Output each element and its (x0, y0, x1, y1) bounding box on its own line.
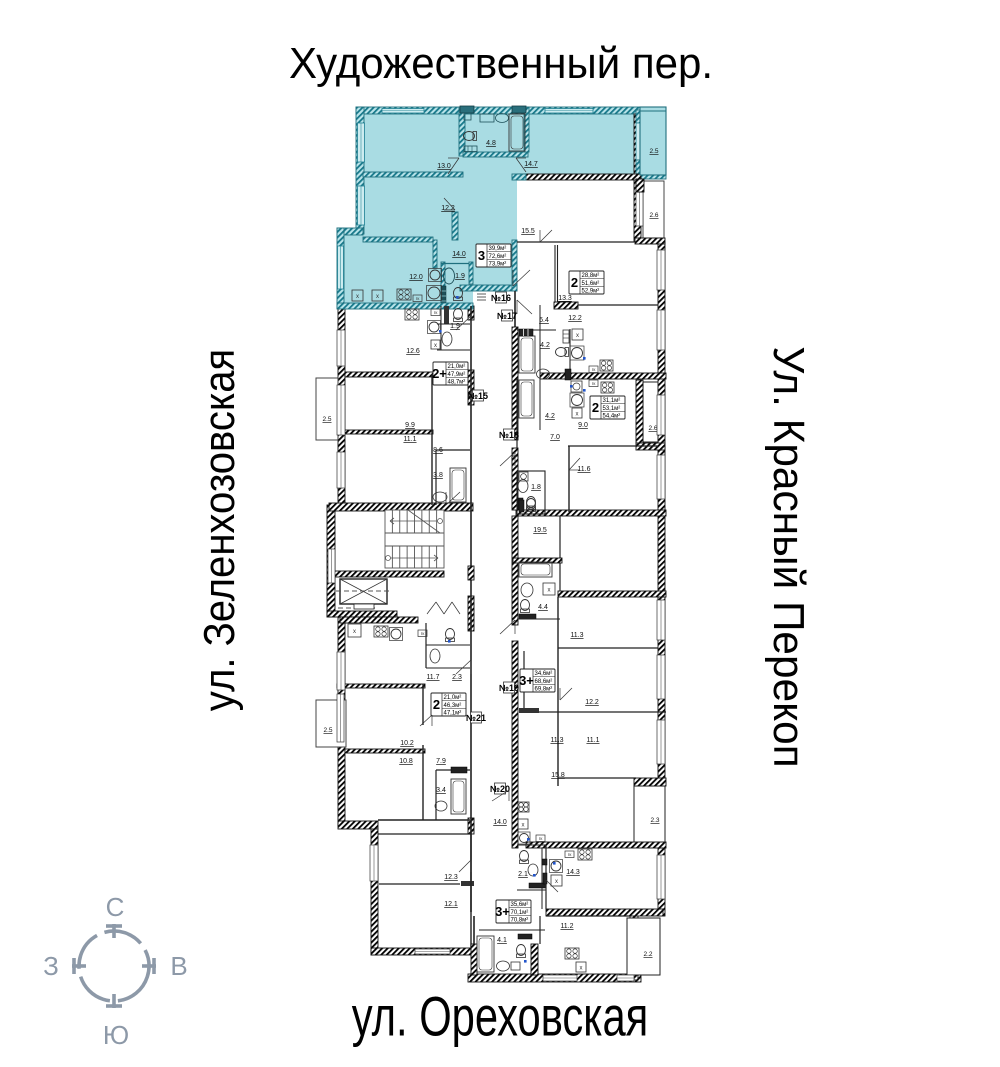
svg-text:72,6м²: 72,6м² (489, 254, 507, 260)
svg-text:3.4: 3.4 (436, 787, 446, 794)
svg-text:19.5: 19.5 (533, 527, 547, 534)
svg-text:x: x (356, 294, 359, 300)
svg-text:№15: №15 (468, 391, 488, 401)
svg-text:53,1м²: 53,1м² (603, 406, 621, 412)
svg-text:1.9: 1.9 (455, 273, 465, 280)
svg-text:2: 2 (433, 697, 440, 712)
svg-text:11.7: 11.7 (426, 674, 439, 681)
svg-text:11.2: 11.2 (560, 923, 573, 930)
svg-text:№18: №18 (499, 430, 519, 440)
svg-text:12.2: 12.2 (441, 205, 455, 212)
svg-text:7.9: 7.9 (436, 758, 446, 765)
svg-text:11.6: 11.6 (577, 466, 590, 473)
svg-text:73,9м²: 73,9м² (489, 262, 507, 268)
svg-text:10.8: 10.8 (399, 758, 413, 765)
svg-text:2+: 2+ (432, 366, 447, 381)
svg-text:4.2: 4.2 (540, 342, 550, 349)
svg-text:12.6: 12.6 (406, 348, 420, 355)
svg-text:x: x (576, 333, 579, 339)
svg-text:x: x (434, 343, 437, 349)
svg-text:11.1: 11.1 (403, 436, 416, 443)
svg-text:31,1м²: 31,1м² (603, 398, 621, 404)
svg-text:70,1м²: 70,1м² (511, 910, 529, 916)
svg-text:№16: №16 (491, 293, 511, 303)
svg-text:54,4м²: 54,4м² (603, 414, 621, 420)
svg-text:8.6: 8.6 (433, 447, 443, 454)
svg-text:x: x (555, 879, 558, 885)
svg-text:3: 3 (478, 248, 485, 263)
svg-text:2: 2 (592, 400, 599, 415)
svg-text:гк: гк (592, 381, 596, 386)
svg-text:68,6м²: 68,6м² (535, 679, 553, 685)
svg-text:69,8м²: 69,8м² (535, 687, 553, 693)
svg-text:x: x (353, 629, 356, 635)
svg-text:47,1м²: 47,1м² (444, 711, 462, 717)
svg-text:46,3м²: 46,3м² (444, 703, 462, 709)
svg-text:35,6м²: 35,6м² (511, 902, 529, 908)
svg-text:x: x (580, 966, 583, 972)
svg-text:4.2: 4.2 (545, 413, 555, 420)
svg-text:28,8м²: 28,8м² (582, 273, 600, 279)
svg-text:4.4: 4.4 (538, 604, 548, 611)
svg-text:12.1: 12.1 (444, 901, 458, 908)
svg-text:x: x (548, 588, 551, 594)
svg-text:гк: гк (568, 852, 572, 857)
svg-text:2.3: 2.3 (650, 817, 659, 824)
svg-text:3+: 3+ (519, 673, 534, 688)
svg-text:14.7: 14.7 (524, 161, 538, 168)
svg-text:47,9м²: 47,9м² (448, 372, 466, 378)
svg-text:гк: гк (539, 836, 543, 841)
svg-text:2: 2 (571, 275, 578, 290)
svg-text:3.8: 3.8 (433, 472, 443, 479)
svg-text:9.9: 9.9 (405, 422, 415, 429)
svg-text:15.8: 15.8 (551, 772, 565, 779)
svg-text:34,6м²: 34,6м² (535, 671, 553, 677)
svg-text:14.3: 14.3 (566, 869, 580, 876)
svg-text:2.5: 2.5 (649, 148, 658, 155)
svg-text:2.2: 2.2 (643, 951, 652, 958)
svg-text:21,0м²: 21,0м² (444, 695, 462, 701)
svg-text:6.4: 6.4 (539, 317, 549, 324)
svg-text:3+: 3+ (495, 904, 510, 919)
svg-text:№19: №19 (499, 683, 519, 693)
svg-text:гк: гк (434, 310, 438, 315)
svg-text:15.5: 15.5 (521, 228, 535, 235)
svg-text:№20: №20 (490, 784, 510, 794)
svg-text:4.1: 4.1 (497, 937, 507, 944)
svg-text:2.1: 2.1 (518, 871, 528, 878)
svg-text:2.6: 2.6 (648, 425, 657, 432)
svg-text:14.0: 14.0 (493, 819, 507, 826)
svg-text:12.2: 12.2 (585, 699, 599, 706)
svg-text:гк: гк (592, 367, 596, 372)
svg-text:11.1: 11.1 (586, 737, 599, 744)
svg-text:7.0: 7.0 (550, 434, 560, 441)
svg-text:гк: гк (421, 631, 425, 636)
svg-text:39,9м²: 39,9м² (489, 246, 507, 252)
svg-text:48,7м²: 48,7м² (448, 380, 466, 386)
svg-text:70,8м²: 70,8м² (511, 918, 529, 924)
svg-text:2.5: 2.5 (322, 416, 331, 423)
svg-text:x: x (576, 412, 579, 418)
svg-text:14.0: 14.0 (452, 251, 466, 258)
svg-text:x: x (522, 823, 525, 829)
svg-text:13.0: 13.0 (437, 163, 451, 170)
svg-text:21,0м²: 21,0м² (448, 364, 466, 370)
svg-text:9.0: 9.0 (578, 422, 588, 429)
svg-text:x: x (376, 294, 379, 300)
svg-text:11.3: 11.3 (550, 737, 563, 744)
svg-text:2.6: 2.6 (649, 212, 658, 219)
svg-text:52,9м²: 52,9м² (582, 289, 600, 295)
svg-text:№17: №17 (497, 311, 517, 321)
svg-text:12.0: 12.0 (409, 274, 423, 281)
svg-text:12.2: 12.2 (568, 315, 582, 322)
svg-text:12.3: 12.3 (444, 874, 458, 881)
svg-text:11.3: 11.3 (570, 632, 583, 639)
svg-text:10.2: 10.2 (400, 740, 414, 747)
svg-text:гк: гк (416, 296, 420, 301)
svg-text:1.8: 1.8 (531, 484, 541, 491)
svg-text:1.9: 1.9 (450, 323, 460, 330)
svg-text:№21: №21 (466, 713, 486, 723)
svg-text:13.3: 13.3 (558, 295, 572, 302)
svg-text:2.5: 2.5 (323, 727, 332, 734)
svg-text:4.8: 4.8 (486, 140, 496, 147)
svg-text:51,6м²: 51,6м² (582, 281, 600, 287)
svg-text:2.3: 2.3 (452, 674, 462, 681)
